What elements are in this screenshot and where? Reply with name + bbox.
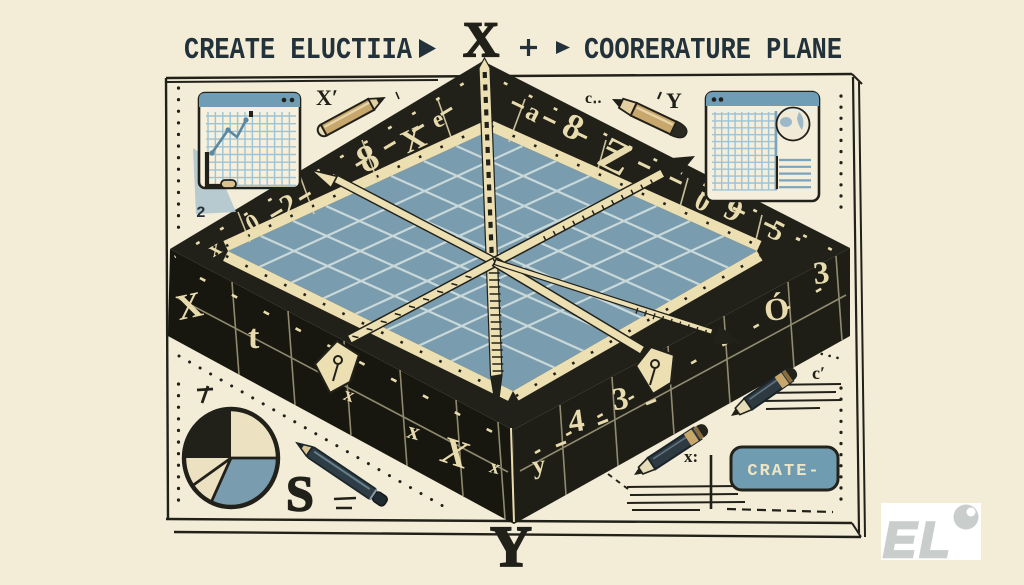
svg-text:x:: x: [684, 447, 698, 466]
svg-text:CRATE-: CRATE- [747, 462, 820, 481]
svg-text:c․.: c․. [585, 90, 601, 107]
svg-text:COORERATURE PLANE: COORERATURE PLANE [584, 33, 842, 68]
svg-text:Y: Y [666, 88, 682, 113]
svg-text:X: X [463, 11, 499, 67]
svg-text:Y: Y [490, 514, 532, 579]
svg-text:cʹ: cʹ [812, 363, 825, 383]
svg-text:S: S [286, 465, 314, 521]
svg-text:Ó: Ó [762, 290, 791, 328]
svg-text:2: 2 [196, 204, 206, 222]
svg-text:t: t [248, 319, 260, 356]
svg-text:Xʹ: Xʹ [316, 85, 338, 110]
svg-text:EL: EL [883, 512, 953, 568]
svg-text:CREATE ELUCTIIA: CREATE ELUCTIIA [184, 33, 412, 68]
